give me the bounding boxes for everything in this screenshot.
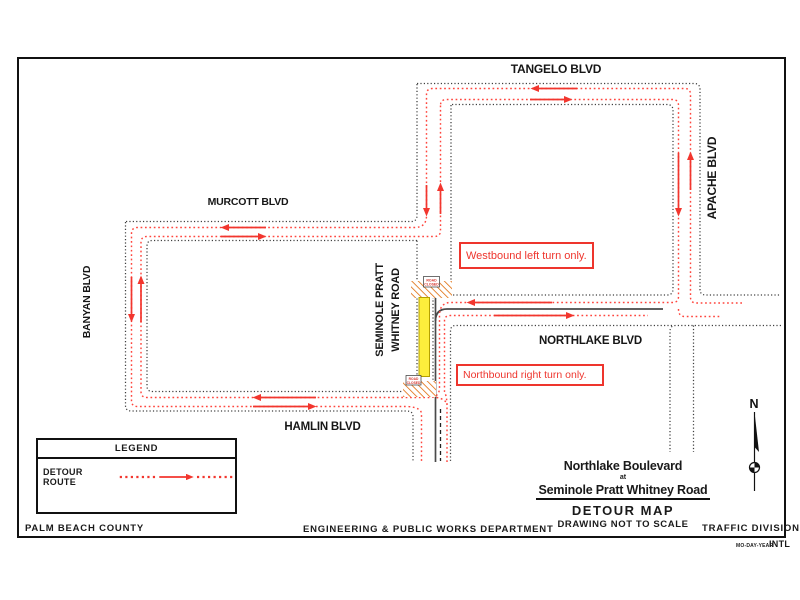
title-not-to-scale: DRAWING NOT TO SCALE [535, 519, 711, 530]
road-closed-sign-north: ROAD CLOSED [424, 277, 440, 288]
road-label-banyan: BANYAN BLVD [81, 262, 93, 342]
title-road-2: Seminole Pratt Whitney Road [536, 483, 711, 500]
legend-detour-route-symbol [117, 471, 235, 483]
road-label-seminole-line2: WHITNEY ROAD [389, 250, 405, 370]
road-label-murcott: MURCOTT BLVD [203, 196, 293, 208]
legend-title: LEGEND [38, 440, 235, 459]
callout-westbound-left-turn: Westbound left turn only. [459, 242, 594, 269]
detour-direction-arrows [132, 89, 691, 407]
road-label-apache: APACHE BLVD [705, 133, 719, 223]
title-road-1: Northlake Boulevard [535, 459, 711, 473]
road-closed-text-2: CLOSED [424, 283, 439, 287]
closed-road-highlight [419, 298, 430, 377]
road-closed-sign-south: ROAD CLOSED [406, 376, 421, 386]
legend-detour-route-label: DETOUR ROUTE [43, 467, 112, 487]
detour-map-sheet: ROAD CLOSED ROAD CLOSED N TANGELO BLVD A… [0, 0, 800, 600]
footer-department: ENGINEERING & PUBLIC WORKS DEPARTMENT [303, 524, 554, 535]
title-at: at [535, 474, 711, 481]
road-label-seminole: SEMINOLE PRATT WHITNEY ROAD [373, 250, 405, 370]
initials-stamp: INTL [769, 539, 790, 549]
compass-n-label: N [749, 397, 758, 411]
road-label-tangelo: TANGELO BLVD [505, 62, 607, 76]
north-arrow-compass: N [749, 397, 759, 491]
callout-northbound-right-turn: Northbound right turn only. [456, 364, 604, 386]
date-format-stamp: MO-DAY-YEAR [736, 543, 773, 549]
title-block: Northlake Boulevard at Seminole Pratt Wh… [535, 459, 711, 530]
road-closed-text-4: CLOSED [407, 381, 421, 385]
road-edges [126, 84, 782, 463]
footer-division: TRAFFIC DIVISION [702, 523, 800, 534]
road-label-seminole-line1: SEMINOLE PRATT [373, 250, 389, 370]
title-detour-map: DETOUR MAP [535, 503, 711, 518]
road-label-northlake: NORTHLAKE BLVD [533, 335, 648, 347]
legend-box: LEGEND DETOUR ROUTE [36, 438, 237, 514]
road-label-hamlin: HAMLIN BLVD [280, 421, 365, 433]
detour-route-lines [132, 89, 743, 463]
footer-county: PALM BEACH COUNTY [25, 523, 144, 534]
road-closure: ROAD CLOSED ROAD CLOSED [403, 277, 452, 398]
